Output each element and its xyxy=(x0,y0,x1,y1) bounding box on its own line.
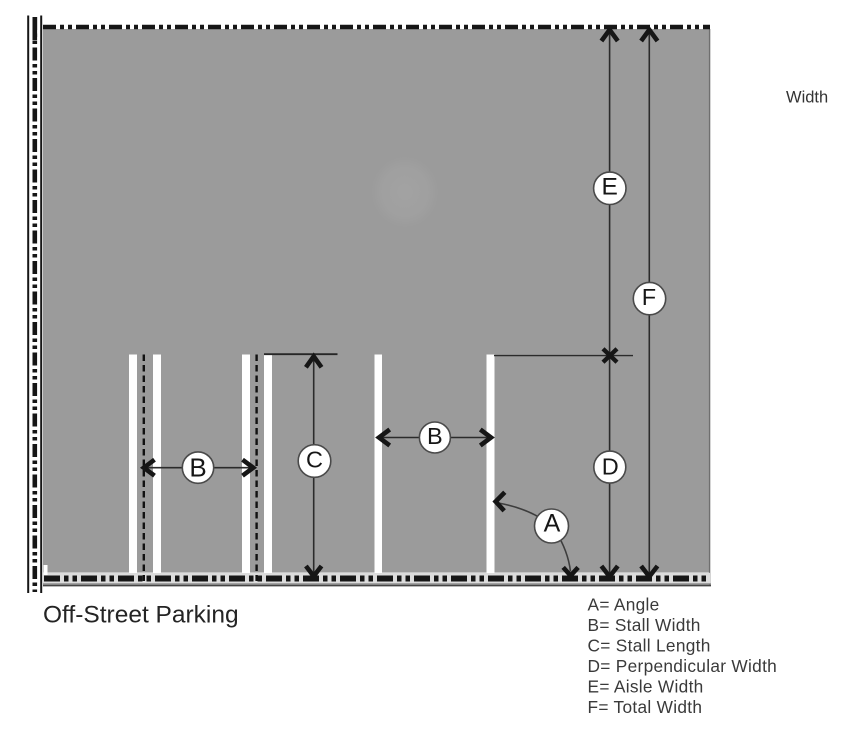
svg-text:B: B xyxy=(189,453,206,483)
svg-text:E: E xyxy=(602,174,618,201)
svg-text:A= Angle: A= Angle xyxy=(588,594,660,614)
svg-text:B: B xyxy=(427,423,443,449)
svg-text:F= Total Width: F= Total Width xyxy=(588,697,703,717)
svg-text:C: C xyxy=(306,447,323,473)
svg-text:F: F xyxy=(642,284,656,310)
svg-text:B= Stall Width: B= Stall Width xyxy=(588,615,701,635)
svg-text:E= Aisle Width: E= Aisle Width xyxy=(588,676,704,696)
svg-text:C= Stall Length: C= Stall Length xyxy=(588,635,711,655)
svg-text:D= Perpendicular Width: D= Perpendicular Width xyxy=(588,656,778,676)
svg-text:Width: Width xyxy=(786,89,828,107)
svg-text:A: A xyxy=(544,509,561,537)
svg-text:Off-Street Parking: Off-Street Parking xyxy=(43,602,239,629)
svg-text:D: D xyxy=(602,454,619,480)
